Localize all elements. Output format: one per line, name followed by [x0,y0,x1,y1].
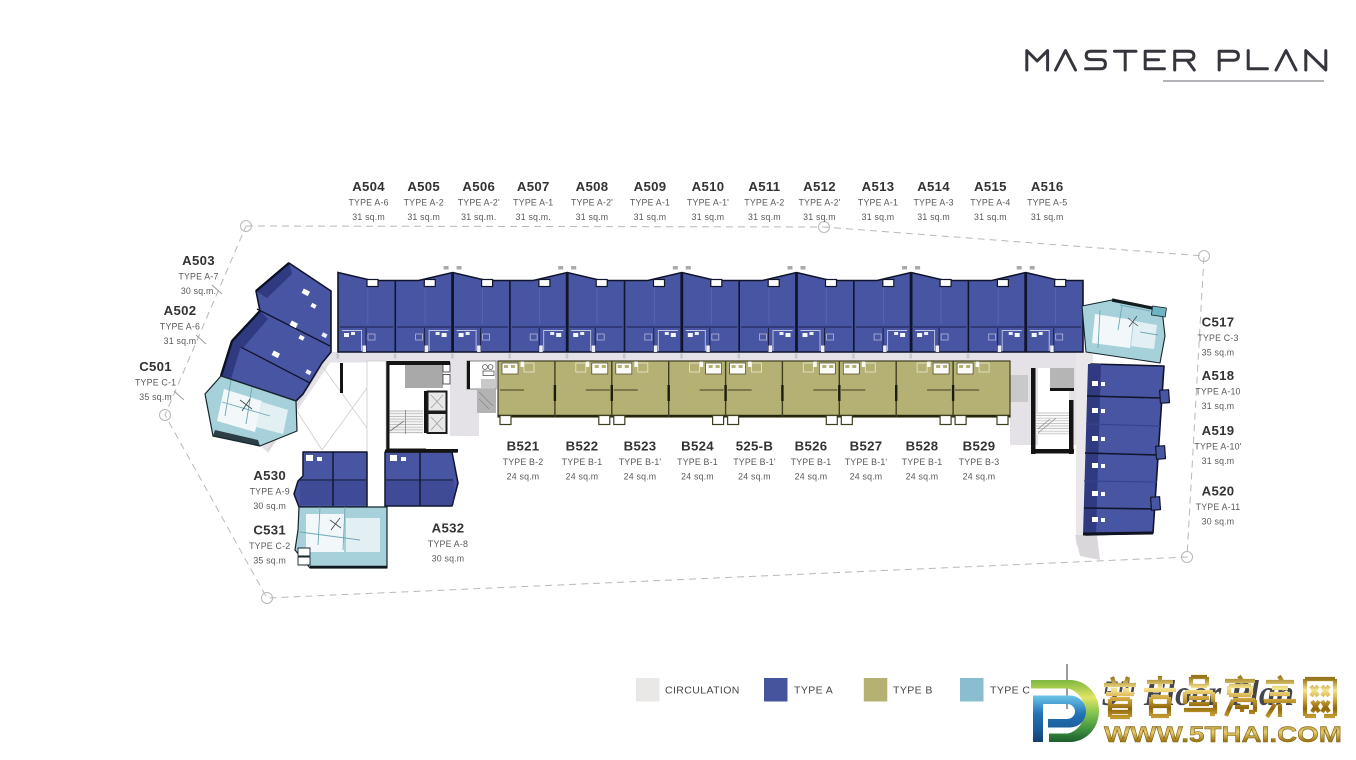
svg-text:TYPE B-1: TYPE B-1 [677,457,718,467]
svg-text:31 sq.m: 31 sq.m [1202,401,1235,411]
svg-text:A513: A513 [862,179,895,194]
svg-text:TYPE C: TYPE C [990,685,1030,697]
svg-text:B521: B521 [507,439,540,454]
svg-text:TYPE A-1': TYPE A-1' [687,198,729,208]
svg-text:TYPE A-6: TYPE A-6 [160,322,200,332]
svg-text:B524: B524 [681,439,714,454]
svg-text:TYPE A-3: TYPE A-3 [913,198,953,208]
svg-text:A516: A516 [1031,179,1064,194]
svg-text:A520: A520 [1202,484,1235,499]
svg-text:TYPE B-3: TYPE B-3 [959,457,1000,467]
svg-text:TYPE A-10': TYPE A-10' [1194,442,1241,452]
svg-text:30 sq.m.: 30 sq.m. [181,286,216,296]
svg-text:30 sq.m: 30 sq.m [1202,517,1235,527]
svg-text:TYPE A-9: TYPE A-9 [250,487,290,497]
svg-text:31 sq.m: 31 sq.m [1031,212,1064,222]
svg-text:C531: C531 [253,523,286,538]
svg-text:TYPE A-8: TYPE A-8 [428,539,468,549]
svg-text:31 sq.m: 31 sq.m [352,212,385,222]
svg-text:A505: A505 [407,179,440,194]
svg-text:31 sq.m: 31 sq.m [164,336,197,346]
svg-text:TYPE B: TYPE B [893,685,933,697]
svg-text:TYPE C-3: TYPE C-3 [1197,333,1238,343]
svg-text:31 sq.m: 31 sq.m [407,212,440,222]
svg-text:31 sq.m: 31 sq.m [974,212,1007,222]
svg-text:24 sq.m: 24 sq.m [681,472,714,482]
svg-text:WWW.5THAI.COM: WWW.5THAI.COM [1104,722,1342,747]
svg-text:TYPE A-1: TYPE A-1 [630,198,670,208]
svg-text:31 sq.m: 31 sq.m [803,212,836,222]
svg-text:31 sq.m: 31 sq.m [1202,456,1235,466]
svg-text:CIRCULATION: CIRCULATION [665,685,740,697]
svg-text:24 sq.m: 24 sq.m [507,472,540,482]
svg-text:A503: A503 [182,253,215,268]
svg-text:B529: B529 [963,439,996,454]
svg-text:A506: A506 [462,179,495,194]
svg-text:24 sq.m: 24 sq.m [850,472,883,482]
svg-text:TYPE A-7: TYPE A-7 [178,272,218,282]
svg-text:TYPE B-1': TYPE B-1' [845,457,888,467]
svg-text:30 sq.m: 30 sq.m [253,501,286,511]
svg-text:TYPE A-5: TYPE A-5 [1027,198,1067,208]
svg-text:TYPE A-2: TYPE A-2 [744,198,784,208]
svg-text:TYPE C-2: TYPE C-2 [249,541,290,551]
svg-text:TYPE A-4: TYPE A-4 [970,198,1010,208]
svg-text:TYPE A-2': TYPE A-2' [571,198,613,208]
svg-text:TYPE A-1: TYPE A-1 [858,198,898,208]
svg-text:C501: C501 [139,359,172,374]
svg-text:A515: A515 [974,179,1007,194]
svg-text:A508: A508 [576,179,609,194]
svg-text:A502: A502 [164,303,197,318]
svg-text:A519: A519 [1202,423,1235,438]
svg-text:24 sq.m: 24 sq.m [795,472,828,482]
svg-text:31 sq.m: 31 sq.m [862,212,895,222]
svg-text:A507: A507 [517,179,550,194]
svg-text:31 sq.m: 31 sq.m [634,212,667,222]
svg-text:TYPE B-1: TYPE B-1 [562,457,603,467]
svg-text:31 sq.m: 31 sq.m [748,212,781,222]
svg-text:B526: B526 [795,439,828,454]
svg-text:525-B: 525-B [736,439,773,454]
svg-text:TYPE C-1: TYPE C-1 [135,378,176,388]
svg-text:B522: B522 [566,439,599,454]
svg-text:C517: C517 [1202,315,1235,330]
svg-text:TYPE A-10: TYPE A-10 [1195,387,1240,397]
svg-text:TYPE A-6: TYPE A-6 [348,198,388,208]
svg-text:24 sq.m: 24 sq.m [738,472,771,482]
svg-text:35 sq.m: 35 sq.m [139,392,172,402]
svg-text:A518: A518 [1202,368,1235,383]
svg-text:B527: B527 [850,439,883,454]
svg-text:TYPE B-1': TYPE B-1' [733,457,776,467]
svg-text:TYPE B-1': TYPE B-1' [619,457,662,467]
svg-text:35 sq.m: 35 sq.m [253,556,286,566]
svg-text:B528: B528 [906,439,939,454]
svg-text:TYPE A-11: TYPE A-11 [1196,502,1241,512]
svg-text:TYPE A-1: TYPE A-1 [513,198,553,208]
svg-text:A512: A512 [803,179,836,194]
svg-text:TYPE B-2: TYPE B-2 [503,457,544,467]
svg-text:A510: A510 [692,179,725,194]
svg-text:31 sq.m.: 31 sq.m. [461,212,496,222]
svg-text:TYPE A-2': TYPE A-2' [798,198,840,208]
svg-text:24 sq.m: 24 sq.m [906,472,939,482]
svg-text:A511: A511 [748,179,780,194]
svg-text:24 sq.m: 24 sq.m [566,472,599,482]
svg-text:A504: A504 [352,179,385,194]
svg-text:B523: B523 [624,439,657,454]
svg-text:A530: A530 [253,468,286,483]
svg-text:31 sq.m: 31 sq.m [576,212,609,222]
svg-text:31 sq.m: 31 sq.m [692,212,725,222]
svg-text:24 sq.m: 24 sq.m [963,472,996,482]
svg-text:31 sq.m.: 31 sq.m. [516,212,551,222]
svg-text:31 sq.m: 31 sq.m [917,212,950,222]
svg-text:TYPE A-2': TYPE A-2' [458,198,500,208]
svg-text:35 sq.m: 35 sq.m [1202,348,1235,358]
svg-text:24 sq.m: 24 sq.m [624,472,657,482]
svg-text:A532: A532 [432,521,465,536]
svg-text:TYPE B-1: TYPE B-1 [902,457,943,467]
svg-text:A514: A514 [917,179,950,194]
svg-text:TYPE B-1: TYPE B-1 [791,457,832,467]
svg-text:A509: A509 [634,179,667,194]
svg-text:TYPE A-2: TYPE A-2 [404,198,444,208]
svg-text:30 sq.m: 30 sq.m [432,554,465,564]
svg-text:TYPE A: TYPE A [794,685,833,697]
